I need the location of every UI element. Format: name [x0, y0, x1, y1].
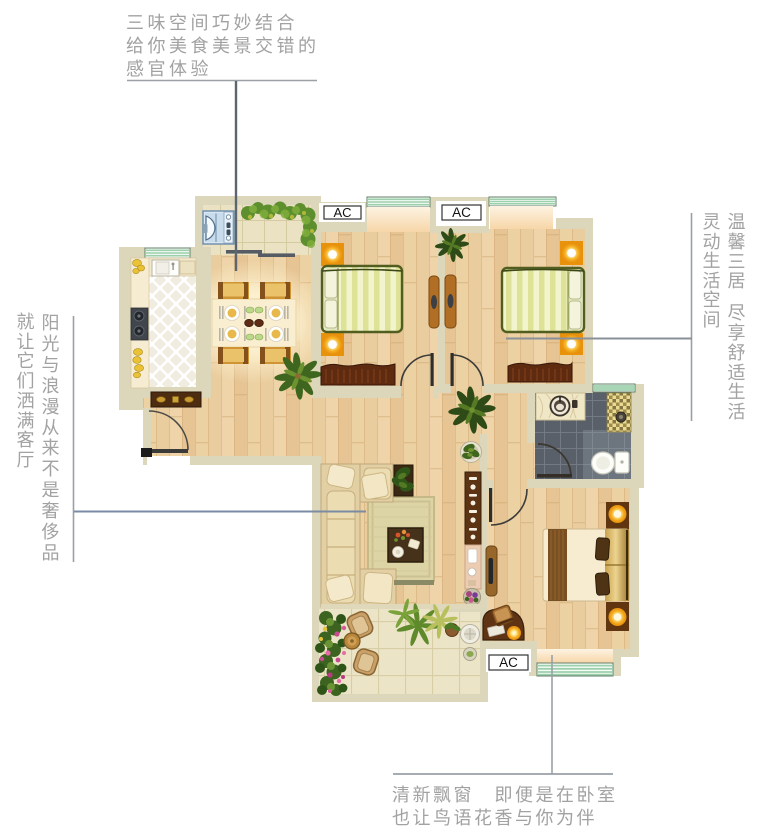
svg-text:AC: AC — [452, 205, 471, 220]
svg-text:AC: AC — [333, 205, 351, 220]
svg-text:AC: AC — [499, 655, 518, 670]
